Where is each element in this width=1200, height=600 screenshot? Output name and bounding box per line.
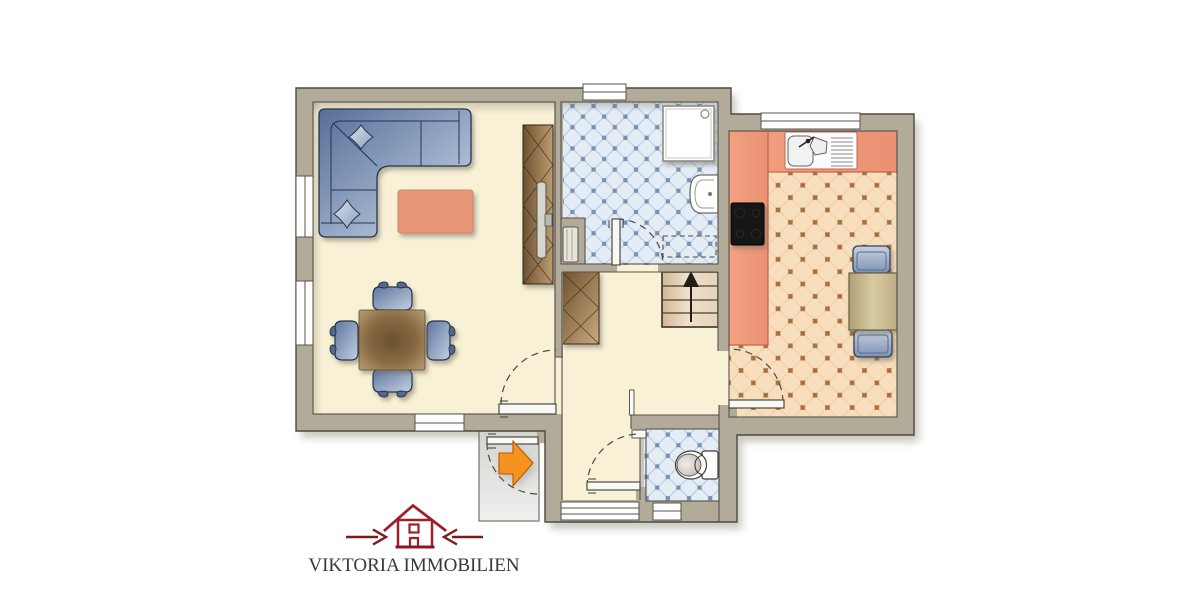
svg-text:VIKTORIA IMMOBILIEN: VIKTORIA IMMOBILIEN [308,555,520,576]
